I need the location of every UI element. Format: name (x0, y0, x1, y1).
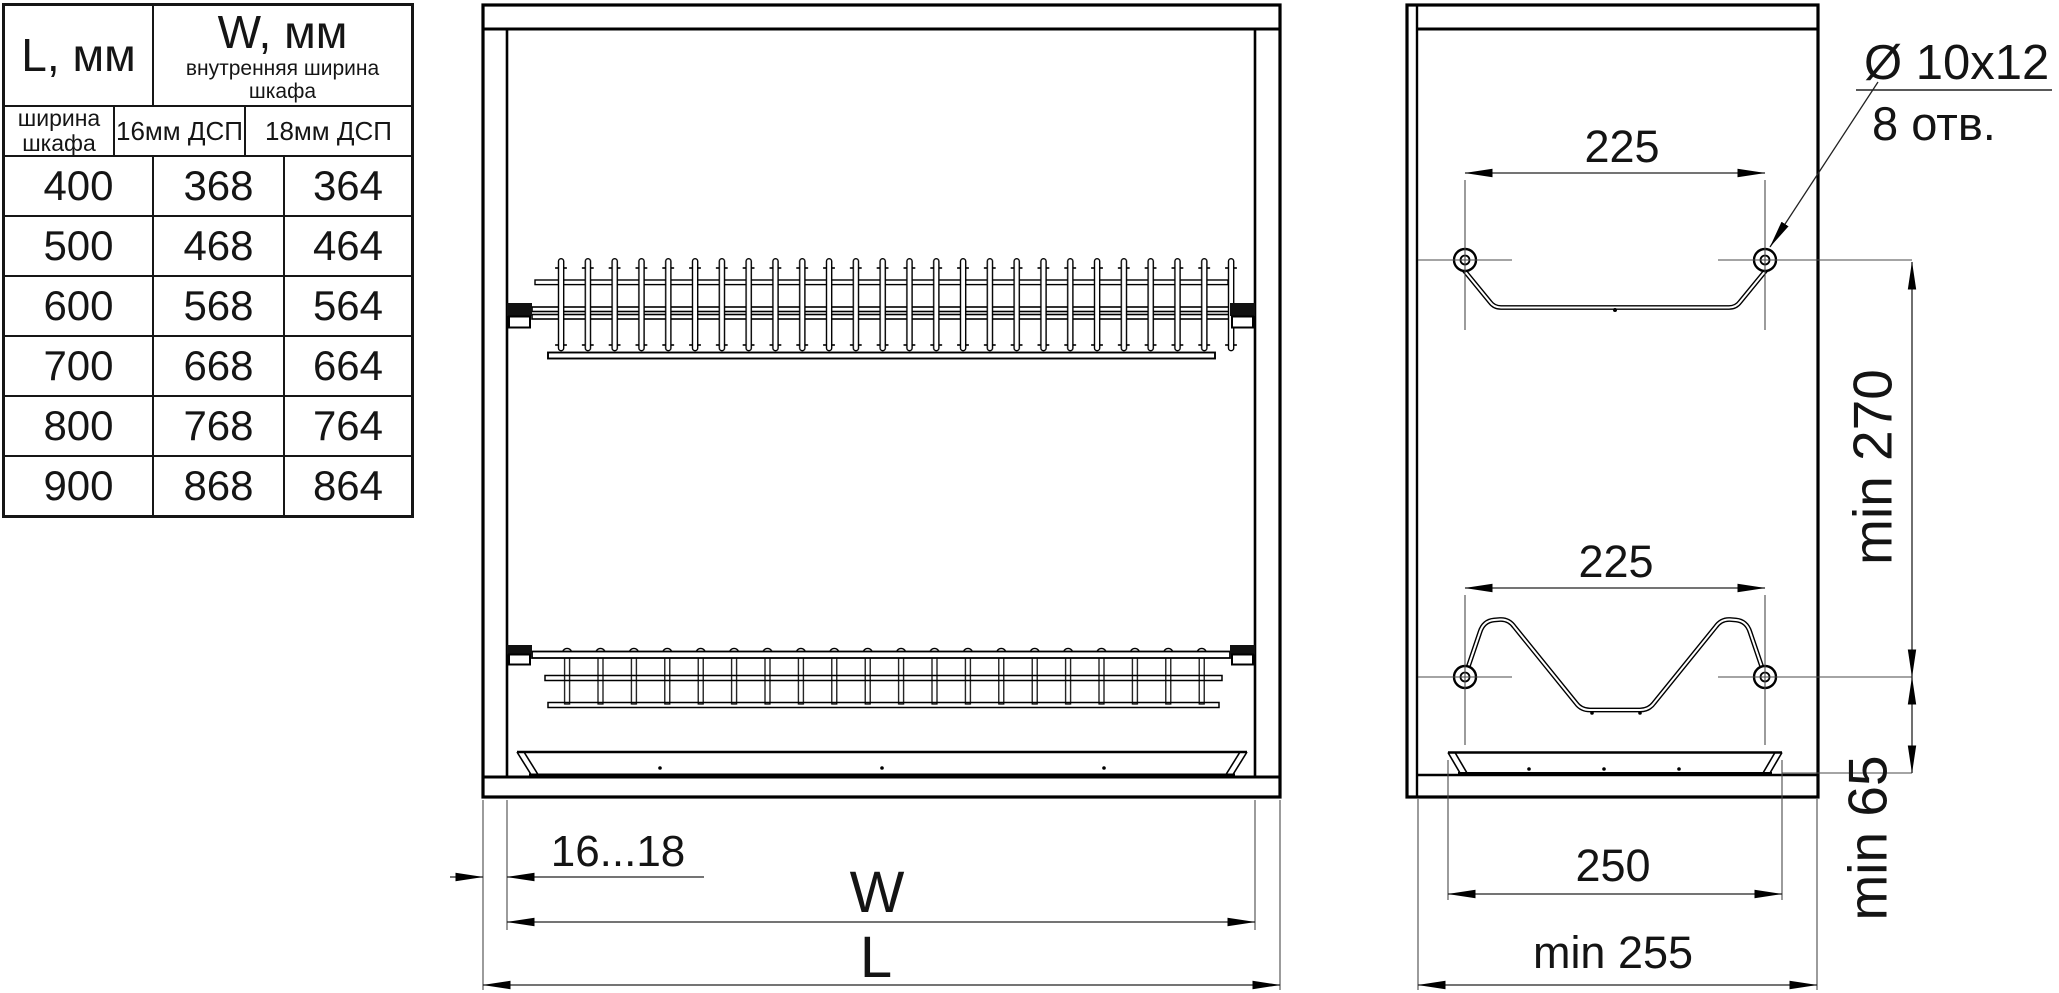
dim-min-depth-label: min 255 (1533, 927, 1693, 978)
cup-rack-front (507, 644, 1255, 708)
dim-min-height-label: min 270 (1842, 369, 1904, 565)
hole-spec-label: Ø 10x12 (1864, 36, 2049, 90)
drawing-views: 16...18 W L (0, 0, 2059, 993)
dim-inner-width-label: W (850, 860, 905, 925)
dim-outer-width-label: L (860, 925, 892, 990)
dim-tray-width-label: 250 (1575, 840, 1650, 891)
front-dimensions: 16...18 W L (450, 800, 1280, 990)
dim-top-span-label: 225 (1584, 121, 1659, 172)
hole-count-label: 8 отв. (1872, 97, 1996, 150)
plate-rack-left-bracket (507, 303, 532, 328)
plate-rack-front (507, 258, 1255, 359)
plate-rack-pins (548, 258, 1240, 352)
technical-drawing-page: L, мм W, мм внутренняя ширина шкафа шири… (0, 0, 2059, 993)
front-view: 16...18 W L (450, 5, 1280, 990)
cup-rack-right-bracket (1230, 645, 1255, 665)
dim-min-clearance-label: min 65 (1837, 755, 1899, 920)
dim-bottom-span-label: 225 (1578, 536, 1653, 587)
side-view: 225 225 Ø 10x12 8 отв. min 270 min 65 25… (1407, 5, 2052, 990)
dim-wall-thickness-label: 16...18 (551, 827, 686, 876)
plate-rack-right-bracket (1230, 303, 1255, 328)
cup-rack-left-bracket (507, 645, 532, 665)
